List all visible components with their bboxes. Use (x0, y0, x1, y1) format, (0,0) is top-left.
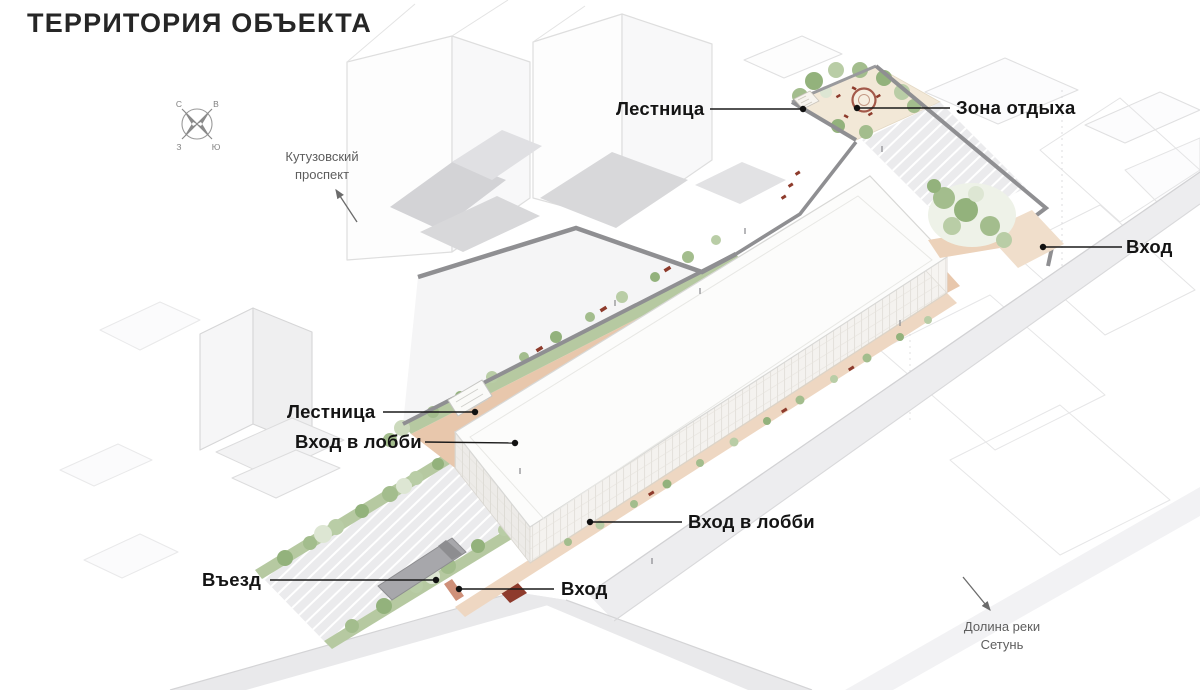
annotation-entrance-right: Вход (1126, 236, 1173, 258)
compass-icon: С В З Ю (176, 99, 221, 152)
compass-south-letter: Ю (212, 142, 221, 152)
annotation-recreation-zone: Зона отдыха (956, 97, 1075, 119)
page-title: ТЕРРИТОРИЯ ОБЪЕКТА (27, 8, 372, 39)
annotation-driveway: Въезд (202, 569, 261, 591)
slide: С В З Ю ТЕРРИТОРИЯ ОБЪЕКТА Лестница Зона… (0, 0, 1200, 690)
annotation-stairs-top: Лестница (616, 98, 704, 120)
setun-arrow-icon (963, 577, 990, 610)
direction-label-setun-river-valley: Долина реки Сетунь (948, 618, 1056, 653)
compass-west-letter: З (176, 142, 181, 152)
leader-stairs-top (710, 106, 806, 112)
compass-north-letter: С (176, 99, 182, 109)
annotation-stairs-left: Лестница (287, 401, 375, 423)
annotation-entrance-bottom: Вход (561, 578, 608, 600)
annotation-lobby-entrance-bottom: Вход в лобби (688, 511, 815, 533)
direction-label-kutuzovsky-prospekt: Кутузовский проспект (262, 148, 382, 183)
compass-east-letter: В (213, 99, 219, 109)
annotation-lobby-entrance-left: Вход в лобби (295, 431, 422, 453)
